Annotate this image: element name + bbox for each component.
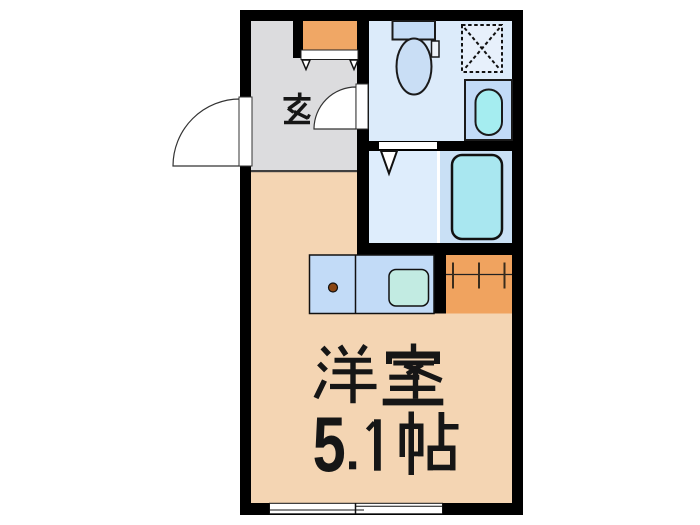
svg-text:5: 5 [313, 400, 346, 488]
